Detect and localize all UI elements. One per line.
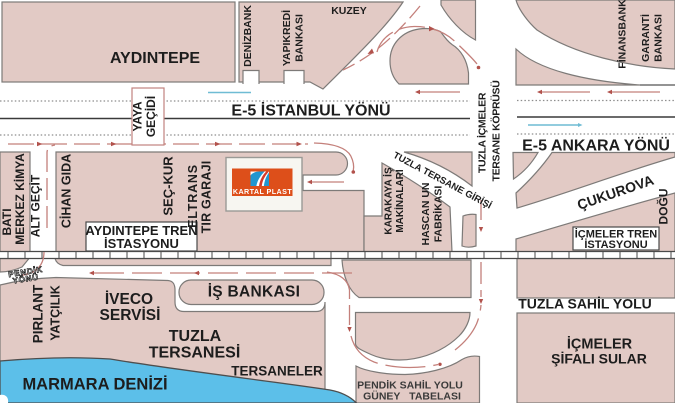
- svg-text:BANKASI: BANKASI: [653, 14, 665, 62]
- svg-text:GARANTİ: GARANTİ: [639, 14, 652, 62]
- svg-text:KUZEY: KUZEY: [331, 5, 367, 17]
- svg-text:AYDINTEPE: AYDINTEPE: [110, 50, 200, 67]
- svg-text:ŞİFALI SULAR: ŞİFALI SULAR: [551, 351, 647, 367]
- svg-text:ALT GEÇİT: ALT GEÇİT: [28, 174, 43, 237]
- svg-text:GEÇİDİ: GEÇİDİ: [143, 96, 158, 137]
- svg-text:BANKASI: BANKASI: [294, 14, 306, 62]
- svg-text:PIRLANT: PIRLANT: [31, 284, 46, 343]
- svg-text:MARMARA DENİZİ: MARMARA DENİZİ: [22, 376, 167, 394]
- svg-text:TUZLA: TUZLA: [169, 328, 222, 345]
- svg-text:SEÇ-KUR: SEÇ-KUR: [161, 156, 176, 216]
- svg-text:İSTASYONU: İSTASYONU: [104, 236, 179, 251]
- svg-text:DOĞU: DOĞU: [656, 189, 671, 225]
- svg-text:TUZLA İÇMELER: TUZLA İÇMELER: [476, 92, 489, 173]
- svg-text:KARAKAYA İŞ: KARAKAYA İŞ: [382, 167, 395, 235]
- svg-text:TERSANE KÖPRÜSÜ: TERSANE KÖPRÜSÜ: [490, 80, 503, 181]
- svg-text:TUZLA SAHİL YOLU: TUZLA SAHİL YOLU: [518, 296, 652, 312]
- svg-text:YATÇILIK: YATÇILIK: [49, 285, 63, 341]
- svg-text:İSTASYONU: İSTASYONU: [584, 238, 647, 251]
- svg-text:YAPIKREDİ: YAPIKREDİ: [280, 10, 293, 66]
- svg-text:HASCAN UN: HASCAN UN: [420, 183, 432, 246]
- svg-text:TERSANELER: TERSANELER: [231, 364, 323, 379]
- svg-text:TERSANESİ: TERSANESİ: [149, 344, 241, 362]
- svg-text:MAKİNALARI: MAKİNALARI: [393, 169, 406, 233]
- svg-text:MERKEZ KİMYA: MERKEZ KİMYA: [12, 153, 27, 245]
- svg-text:KARTAL PLAST: KARTAL PLAST: [233, 187, 292, 196]
- svg-text:İŞ BANKASI: İŞ BANKASI: [208, 284, 301, 301]
- svg-text:E-5 İSTANBUL YÖNÜ: E-5 İSTANBUL YÖNÜ: [231, 101, 390, 120]
- svg-text:CİHAN GIDA: CİHAN GIDA: [59, 154, 74, 228]
- svg-text:E-5 ANKARA YÖNÜ: E-5 ANKARA YÖNÜ: [522, 136, 670, 155]
- svg-text:GÜNEY TABELASI: GÜNEY TABELASI: [363, 390, 461, 403]
- svg-text:TIR GARAJI: TIR GARAJI: [200, 161, 214, 234]
- svg-text:FİNANSBANK: FİNANSBANK: [616, 0, 629, 69]
- svg-text:FABRİKASI: FABRİKASI: [432, 186, 445, 243]
- svg-text:ELTRANS: ELTRANS: [186, 164, 200, 228]
- svg-text:YAYA: YAYA: [131, 101, 145, 131]
- svg-text:DENİZBANK: DENİZBANK: [241, 5, 254, 67]
- svg-text:BATI: BATI: [0, 208, 14, 235]
- svg-text:SERVİSİ: SERVİSİ: [100, 307, 161, 324]
- svg-text:İVECO: İVECO: [105, 291, 153, 308]
